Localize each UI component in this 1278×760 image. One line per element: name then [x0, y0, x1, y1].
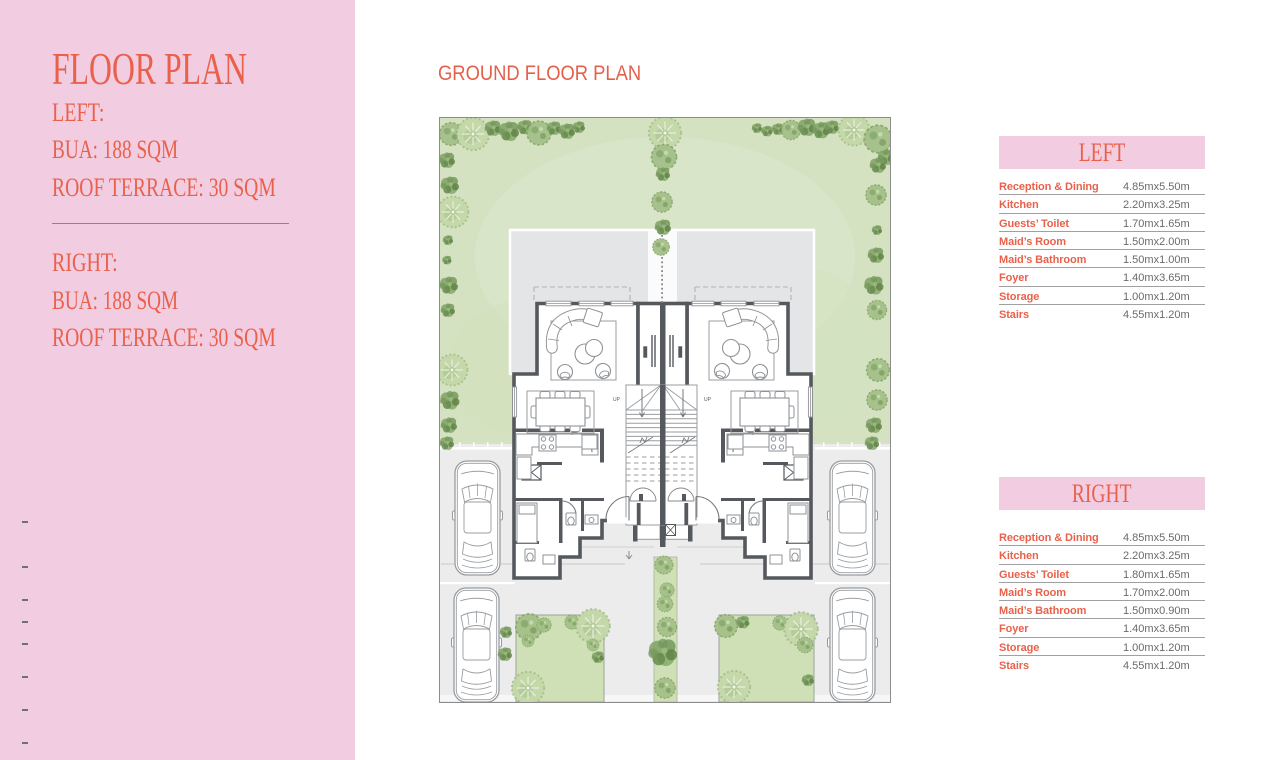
svg-text:UP: UP — [613, 397, 621, 403]
svg-text:UP: UP — [704, 397, 712, 403]
